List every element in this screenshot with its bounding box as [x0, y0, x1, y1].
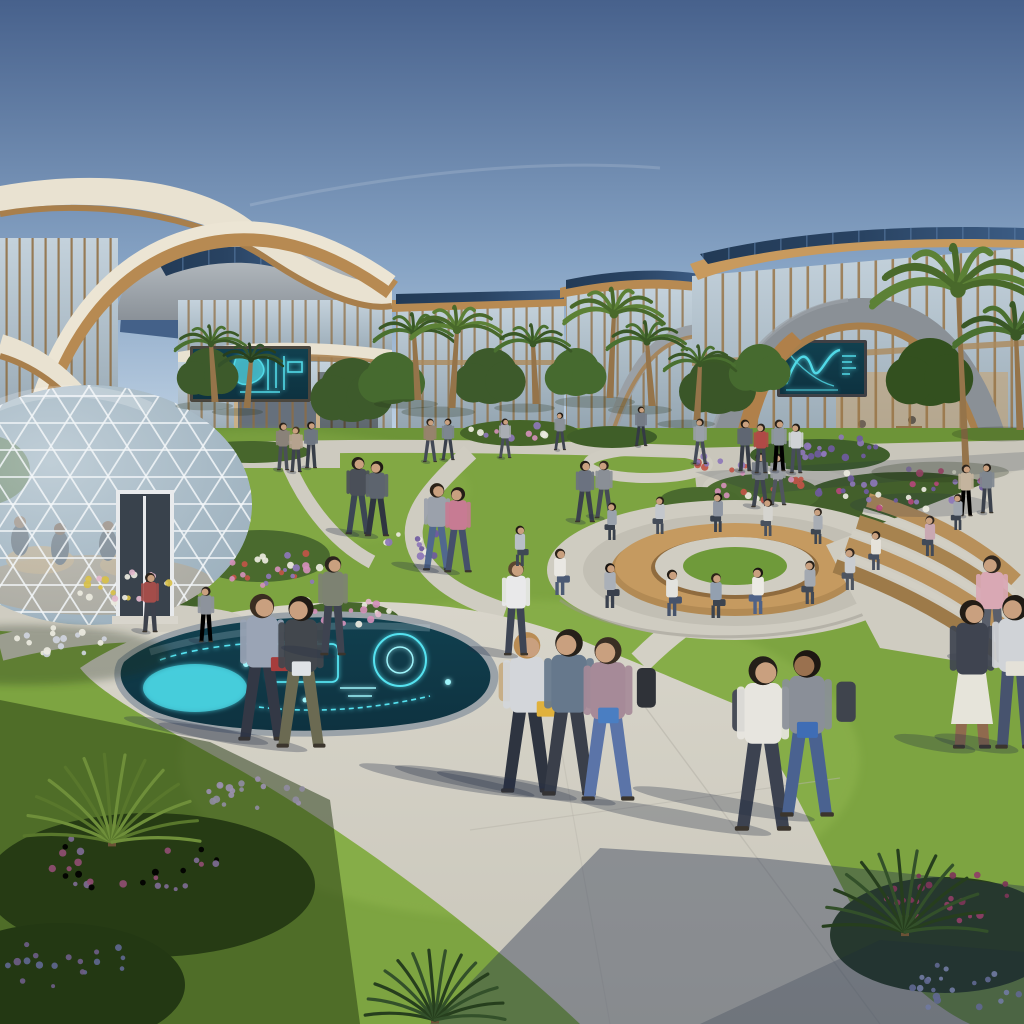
- campus-scene-illustration: Sunny futuristic university campus court…: [0, 0, 1024, 1024]
- scene-canvas: [0, 0, 1024, 1024]
